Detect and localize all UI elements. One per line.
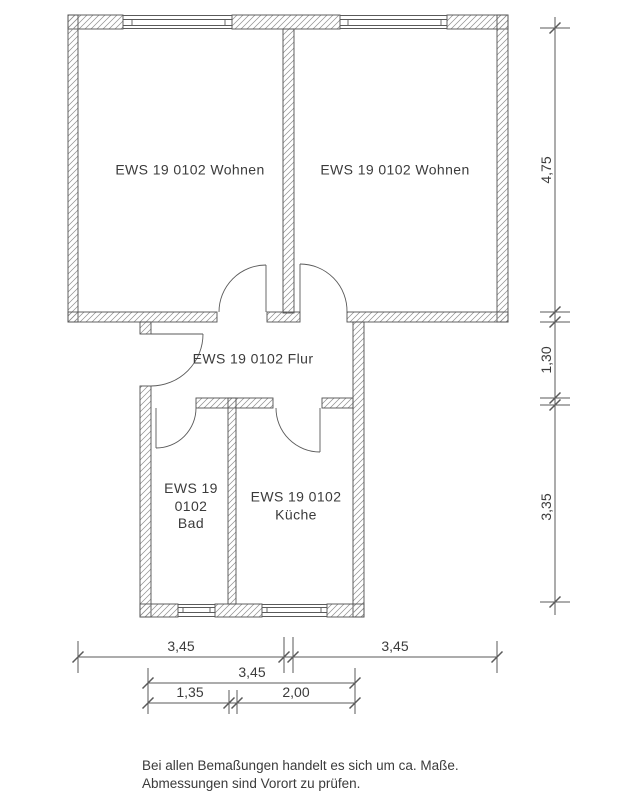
room-label-bad: EWS 19 0102 Bad <box>164 480 218 533</box>
room-label-kueche: EWS 19 0102 Küche <box>251 489 342 524</box>
door-bad <box>156 408 196 448</box>
dim-chain-right <box>540 17 570 615</box>
door-wohnen-left <box>219 265 266 312</box>
wall-partition-wohnen <box>283 29 294 313</box>
wall-bottomblock-top-right <box>322 398 353 408</box>
wall-bottom-right-segment <box>347 312 508 322</box>
room-label-bad-line3: Bad <box>164 515 218 533</box>
room-label-flur: EWS 19 0102 Flur <box>193 350 314 368</box>
dim-label-right-top: 4,75 <box>538 156 554 183</box>
walls <box>68 15 508 617</box>
wall-right-outer <box>497 15 508 322</box>
measurement-disclaimer-line1: Bei allen Bemaßungen handelt es sich um … <box>142 757 459 775</box>
window-wohnen-right <box>340 16 447 29</box>
wall-flur-left-stub <box>140 322 151 334</box>
wall-bottom-middle-stub <box>267 312 300 322</box>
dim-row1 <box>73 637 503 673</box>
door-kueche <box>276 408 320 452</box>
floor-plan-page: EWS 19 0102 Wohnen EWS 19 0102 Wohnen EW… <box>0 0 638 800</box>
wall-bottomblock-left <box>140 386 151 617</box>
dim-label-right-middle: 1,30 <box>538 346 554 373</box>
wall-left-outer <box>68 15 78 322</box>
window-kueche <box>262 605 327 617</box>
room-label-bad-line1: EWS 19 <box>164 480 218 498</box>
wall-bottom-left-segment <box>68 312 217 322</box>
dim-label-row3-left: 1,35 <box>176 684 203 700</box>
dim-row3 <box>143 690 361 714</box>
wall-flur-right <box>353 322 364 617</box>
wall-bottomblock-bottom-mid <box>215 604 262 617</box>
dim-label-row1-left: 3,45 <box>167 638 194 654</box>
window-bad <box>178 605 215 617</box>
dim-label-row3-right: 2,00 <box>282 684 309 700</box>
dim-label-right-bottom: 3,35 <box>538 493 554 520</box>
room-label-wohnen-right: EWS 19 0102 Wohnen <box>320 161 469 179</box>
floor-plan-drawing <box>0 0 638 800</box>
wall-partition-bad-kueche <box>228 398 236 604</box>
wall-bottomblock-bottom-left <box>140 604 178 617</box>
wall-bottomblock-bottom-right <box>327 604 364 617</box>
room-label-kueche-line1: EWS 19 0102 <box>251 489 342 507</box>
dim-label-row2: 3,45 <box>238 664 265 680</box>
door-wohnen-right <box>300 264 347 312</box>
dim-label-row1-right: 3,45 <box>381 638 408 654</box>
room-label-wohnen-left: EWS 19 0102 Wohnen <box>115 161 264 179</box>
room-label-bad-line2: 0102 <box>164 497 218 515</box>
wall-top-middle <box>232 15 340 29</box>
measurement-disclaimer-line2: Abmessungen sind Vorort zu prüfen. <box>142 775 459 793</box>
room-label-kueche-line2: Küche <box>251 506 342 524</box>
measurement-disclaimer: Bei allen Bemaßungen handelt es sich um … <box>142 757 459 792</box>
window-wohnen-left <box>123 16 232 29</box>
